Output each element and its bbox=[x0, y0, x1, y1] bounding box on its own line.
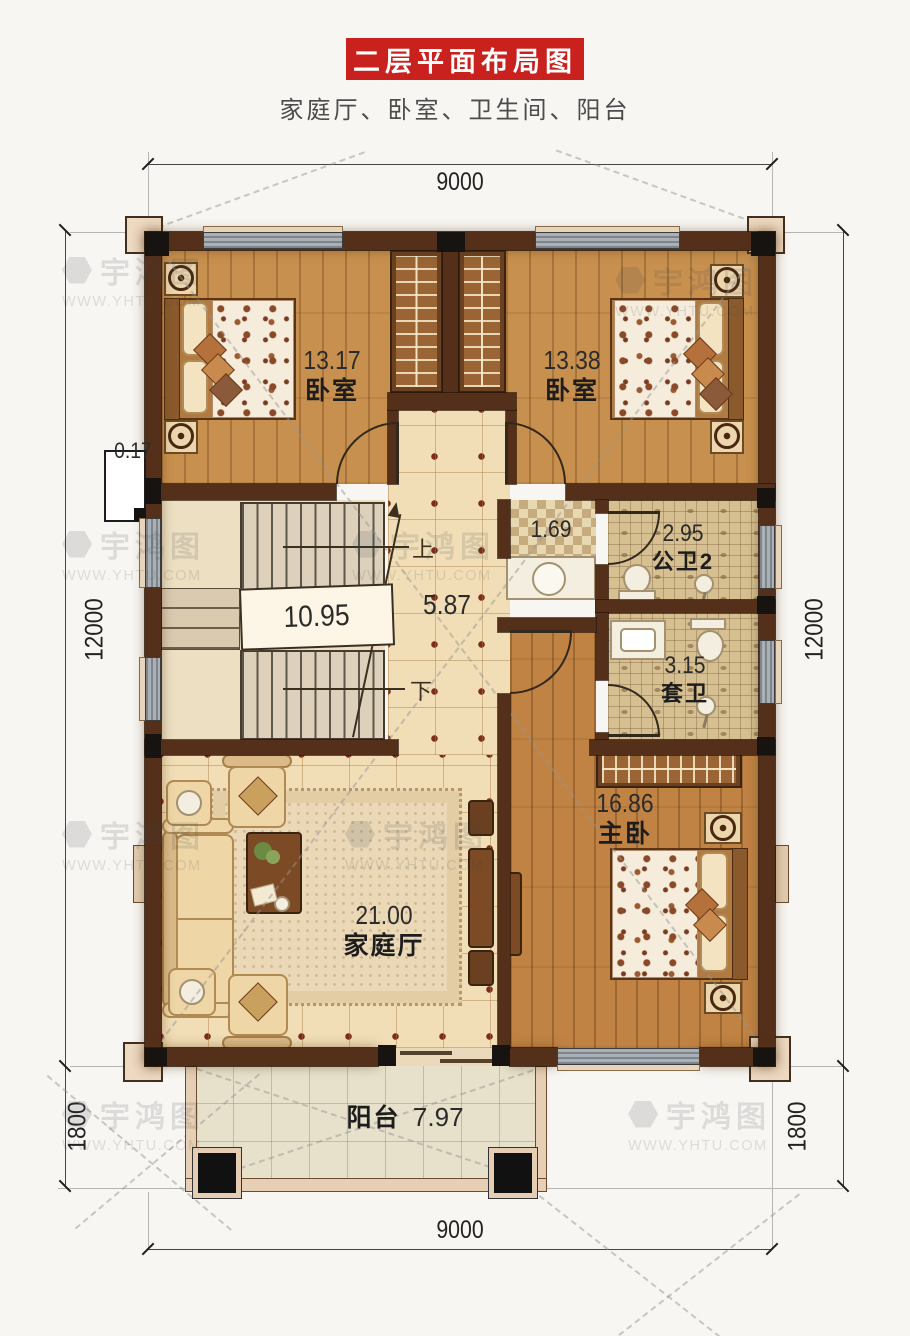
dashed-guide-line bbox=[562, 1193, 800, 1336]
window-sill bbox=[775, 525, 782, 589]
window bbox=[203, 232, 343, 249]
dimension-value-top: 9000 bbox=[426, 168, 494, 197]
wall-segment bbox=[145, 1048, 378, 1066]
window bbox=[759, 640, 775, 704]
watermark-logo-icon bbox=[345, 821, 375, 848]
watermark: 宇鸿图 WWW.YHTU.COM bbox=[62, 812, 205, 874]
plan-title-banner: 二层平面布局图 bbox=[346, 38, 584, 80]
dimension-value-bottom: 9000 bbox=[426, 1216, 494, 1245]
wall-pier bbox=[775, 845, 789, 903]
room-label-bedroom-left: 13.17 卧室 bbox=[282, 345, 382, 406]
dashed-guide-line bbox=[539, 1195, 777, 1336]
column-block bbox=[145, 478, 161, 504]
column-block bbox=[437, 232, 465, 252]
column-block bbox=[751, 232, 775, 256]
table-lamp-icon bbox=[714, 423, 740, 449]
wardrobe-hangers bbox=[464, 256, 500, 387]
wall-segment bbox=[145, 232, 161, 1066]
window-sill bbox=[775, 640, 782, 704]
extension-line bbox=[545, 1188, 843, 1189]
room-area-value: 2.95 bbox=[643, 520, 722, 549]
nightstand bbox=[164, 420, 198, 454]
watermark: 宇鸿图 WWW.YHTU.COM bbox=[345, 812, 488, 874]
watermark: 宇鸿图 WWW.YHTU.COM bbox=[62, 522, 205, 584]
wall-segment bbox=[388, 393, 516, 410]
door-leaf bbox=[505, 422, 508, 484]
room-name: 卧室 bbox=[522, 376, 622, 406]
nightstand bbox=[710, 420, 744, 454]
nightstand bbox=[704, 812, 742, 844]
door-leaf bbox=[608, 511, 660, 514]
wall-segment bbox=[510, 1048, 557, 1066]
toilet-tank bbox=[690, 618, 726, 630]
balcony-column bbox=[193, 1148, 241, 1198]
room-area-value: 3.15 bbox=[647, 652, 723, 681]
room-label-public-bath: 2.95 公卫2 bbox=[638, 520, 728, 575]
watermark-logo-icon bbox=[628, 1101, 658, 1128]
wall-segment bbox=[498, 500, 510, 558]
room-name: 主卧 bbox=[572, 819, 678, 849]
wardrobe-hangers bbox=[602, 755, 736, 783]
watermark: 宇鸿图 WWW.YHTU.COM bbox=[628, 1092, 771, 1154]
wall-segment bbox=[590, 740, 775, 755]
door-leaf bbox=[510, 630, 572, 633]
watermark-logo-icon bbox=[62, 821, 92, 848]
bed-headboard bbox=[164, 298, 180, 420]
watermark-name: 宇鸿图 bbox=[653, 258, 758, 302]
watermark-url: WWW.YHTU.COM bbox=[345, 858, 488, 874]
room-label-balcony: 阳台 7.97 bbox=[320, 1102, 490, 1133]
column-block bbox=[753, 1048, 775, 1066]
table-lamp-icon bbox=[710, 815, 736, 841]
washbasin bbox=[532, 562, 566, 596]
watermark-logo-icon bbox=[62, 1101, 92, 1128]
stair-winder-steps bbox=[161, 588, 240, 650]
watermark-name: 宇鸿图 bbox=[390, 522, 495, 566]
column-block bbox=[757, 596, 775, 614]
sliding-door-panel bbox=[400, 1051, 452, 1055]
room-label-washroom-nook: 1.69 bbox=[518, 516, 584, 545]
table-lamp-icon bbox=[168, 423, 194, 449]
room-label-family-hall: 21.00 家庭厅 bbox=[322, 900, 446, 961]
window-sill bbox=[557, 1064, 700, 1071]
column-block bbox=[757, 488, 775, 508]
room-area-value: 13.38 bbox=[528, 345, 616, 376]
wardrobe-hangers bbox=[396, 256, 437, 387]
room-name: 阳台 bbox=[346, 1104, 400, 1132]
window bbox=[759, 525, 775, 589]
extension-line bbox=[772, 1070, 773, 1250]
door-leaf bbox=[608, 734, 660, 737]
wall-segment bbox=[596, 600, 775, 613]
watermark-url: WWW.YHTU.COM bbox=[62, 1138, 205, 1154]
dimension-value-left: 12000 bbox=[81, 594, 110, 666]
dimension-value-right: 12000 bbox=[801, 594, 830, 666]
wall-segment bbox=[596, 613, 608, 680]
wall-segment bbox=[145, 740, 398, 755]
watermark-url: WWW.YHTU.COM bbox=[62, 294, 205, 310]
window bbox=[535, 232, 680, 249]
room-label-corridor: 5.87 bbox=[412, 588, 482, 622]
room-name: 套卫 bbox=[642, 681, 728, 707]
column-block bbox=[145, 1048, 167, 1066]
column-block bbox=[492, 1045, 510, 1066]
watermark-logo-icon bbox=[62, 531, 92, 558]
watermark-url: WWW.YHTU.COM bbox=[62, 858, 205, 874]
room-name: 家庭厅 bbox=[322, 931, 446, 961]
stair-down-leader-line bbox=[283, 688, 405, 690]
extension-line bbox=[148, 1192, 149, 1250]
nightstand bbox=[704, 982, 742, 1014]
stairwell-area-value: 10.95 bbox=[283, 599, 350, 635]
window bbox=[557, 1048, 700, 1065]
wall-segment bbox=[498, 694, 510, 1048]
watermark: 宇鸿图 WWW.YHTU.COM bbox=[62, 248, 205, 310]
room-area-value: 0.17 bbox=[102, 438, 164, 464]
window bbox=[145, 657, 161, 721]
watermark-logo-icon bbox=[62, 257, 92, 284]
room-area-value: 16.86 bbox=[578, 788, 671, 819]
speaker bbox=[468, 950, 494, 986]
watermark-url: WWW.YHTU.COM bbox=[615, 304, 758, 320]
room-label-wall-niche: 0.17 bbox=[98, 438, 168, 464]
sliding-door-panel bbox=[440, 1059, 492, 1063]
potted-plant-icon bbox=[266, 850, 280, 864]
floor-plan-canvas: 二层平面布局图 家庭厅、卧室、卫生间、阳台 上 下 10.95 bbox=[0, 0, 910, 1336]
watermark-url: WWW.YHTU.COM bbox=[352, 568, 495, 584]
dimension-line-right bbox=[843, 230, 844, 1186]
watermark-name: 宇鸿图 bbox=[100, 1092, 205, 1136]
watermark-logo-icon bbox=[615, 267, 645, 294]
wall-segment bbox=[443, 248, 458, 393]
plan-subtitle: 家庭厅、卧室、卫生间、阳台 bbox=[0, 90, 910, 125]
dashed-guide-line bbox=[556, 149, 773, 230]
watermark: 宇鸿图 WWW.YHTU.COM bbox=[615, 258, 758, 320]
room-label-master-bedroom: 16.86 主卧 bbox=[572, 788, 678, 849]
room-area-value: 5.87 bbox=[416, 588, 478, 622]
wall-segment bbox=[566, 484, 775, 500]
watermark: 宇鸿图 WWW.YHTU.COM bbox=[62, 1092, 205, 1154]
balcony-column bbox=[489, 1148, 537, 1198]
column-block bbox=[378, 1045, 396, 1066]
vanity-basin bbox=[620, 628, 656, 652]
room-area-value: 1.69 bbox=[522, 516, 580, 545]
wall-segment bbox=[596, 500, 608, 513]
bed-headboard bbox=[732, 848, 748, 980]
column-block bbox=[145, 734, 161, 758]
stairwell-area-box: 10.95 bbox=[239, 583, 395, 650]
column-block bbox=[757, 737, 775, 755]
room-label-bedroom-right: 13.38 卧室 bbox=[522, 345, 622, 406]
room-name: 公卫2 bbox=[638, 549, 728, 575]
room-label-ensuite-bath: 3.15 套卫 bbox=[642, 652, 728, 707]
watermark-name: 宇鸿图 bbox=[666, 1092, 771, 1136]
dimension-line-left bbox=[65, 230, 66, 1186]
room-area-value: 7.97 bbox=[413, 1102, 464, 1132]
dimension-line-top bbox=[148, 164, 772, 165]
room-name: 卧室 bbox=[282, 376, 382, 406]
watermark-name: 宇鸿图 bbox=[100, 812, 205, 856]
extension-line bbox=[775, 232, 845, 233]
room-area-value: 13.17 bbox=[288, 345, 376, 376]
bed-duvet bbox=[612, 850, 698, 978]
watermark-logo-icon bbox=[352, 531, 382, 558]
watermark-url: WWW.YHTU.COM bbox=[62, 568, 205, 584]
stair-down-label: 下 bbox=[410, 674, 432, 706]
watermark-url: WWW.YHTU.COM bbox=[628, 1138, 771, 1154]
door-leaf bbox=[396, 422, 399, 484]
plan-title: 二层平面布局图 bbox=[353, 40, 577, 79]
watermark-name: 宇鸿图 bbox=[100, 248, 205, 292]
stair-flight-lower bbox=[240, 650, 385, 740]
watermark: 宇鸿图 WWW.YHTU.COM bbox=[352, 522, 495, 584]
dimension-value-balcony-right: 1800 bbox=[784, 1100, 813, 1154]
wall-segment bbox=[145, 484, 336, 500]
watermark-name: 宇鸿图 bbox=[100, 522, 205, 566]
dimension-line-bottom bbox=[148, 1249, 772, 1250]
room-area-value: 21.00 bbox=[329, 900, 438, 931]
watermark-name: 宇鸿图 bbox=[383, 812, 488, 856]
